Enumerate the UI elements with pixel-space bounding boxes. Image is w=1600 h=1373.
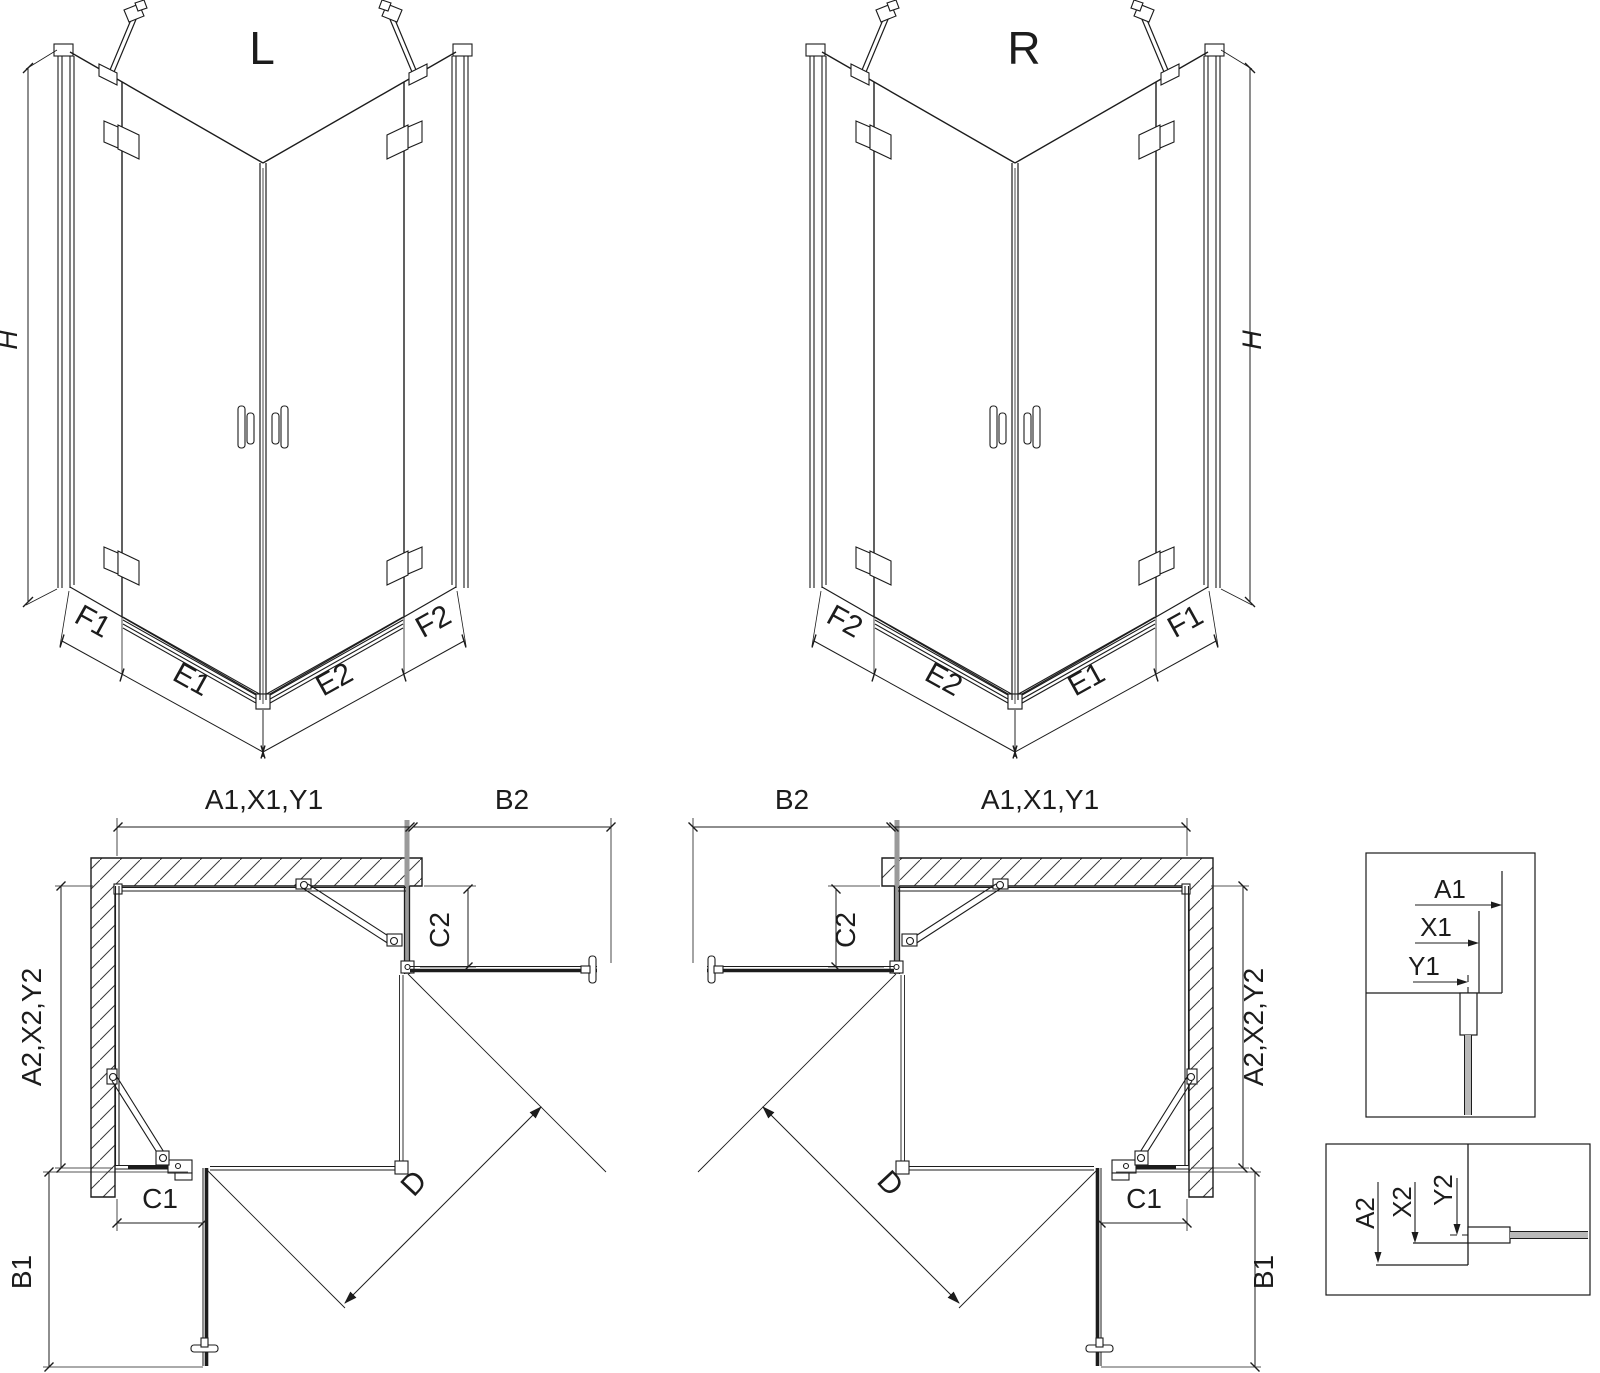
dim-label-e1-left-view: E1 xyxy=(168,656,216,703)
drawing-canvas: L H F1 E1 E2 F2 R H F2 E2 E1 F1 A1,X1,Y1… xyxy=(0,0,1600,1373)
right-plan-walls xyxy=(882,858,1213,1197)
dim-label-e1-right-view: E1 xyxy=(1062,656,1110,703)
left-3d-view xyxy=(23,0,472,759)
dim-label-h-right-view: H xyxy=(1237,330,1267,350)
detail2-label-x2: X2 xyxy=(1387,1186,1417,1218)
dim-label-c2-left-plan: C2 xyxy=(424,912,455,948)
dim-label-b1-left-plan: B1 xyxy=(6,1255,37,1289)
dim-label-f2-right-view: F2 xyxy=(821,599,868,645)
left-plan-view xyxy=(43,818,616,1372)
left-plan-walls xyxy=(91,858,422,1197)
detail2-label-a2: A2 xyxy=(1350,1197,1380,1229)
right-plan-view xyxy=(689,818,1262,1372)
dim-label-a1-right-plan: A1,X1,Y1 xyxy=(981,784,1099,815)
dim-label-a1-left-plan: A1,X1,Y1 xyxy=(205,784,323,815)
dim-label-c1-right-plan: C1 xyxy=(1126,1183,1162,1214)
detail2-label-y2: Y2 xyxy=(1428,1174,1458,1206)
dim-label-c2-right-plan: C2 xyxy=(830,912,861,948)
detail1-label-y1: Y1 xyxy=(1408,951,1440,981)
dim-label-b2-right-plan: B2 xyxy=(775,784,809,815)
dim-label-b1-right-plan: B1 xyxy=(1248,1255,1279,1289)
dim-label-e2-right-view: E2 xyxy=(920,656,968,703)
view-label-right: R xyxy=(1007,22,1040,74)
shower-enclosure-technical-drawing: L H F1 E1 E2 F2 R H F2 E2 E1 F1 A1,X1,Y1… xyxy=(0,0,1600,1373)
dim-label-f1-left-view: F1 xyxy=(69,599,116,645)
dim-label-h-left-view: H xyxy=(0,330,23,350)
dim-label-f2-left-view: F2 xyxy=(410,599,457,645)
detail1-label-x1: X1 xyxy=(1420,912,1452,942)
dim-label-c1-left-plan: C1 xyxy=(142,1183,178,1214)
right-3d-view xyxy=(806,0,1255,759)
detail1-label-a1: A1 xyxy=(1434,874,1466,904)
dim-label-e2-left-view: E2 xyxy=(310,656,358,703)
dim-label-a2-right-plan: A2,X2,Y2 xyxy=(1238,968,1269,1086)
dim-label-f1-right-view: F1 xyxy=(1162,599,1209,645)
view-label-left: L xyxy=(249,22,275,74)
dim-label-a2-left-plan: A2,X2,Y2 xyxy=(16,968,47,1086)
dim-label-b2-left-plan: B2 xyxy=(495,784,529,815)
